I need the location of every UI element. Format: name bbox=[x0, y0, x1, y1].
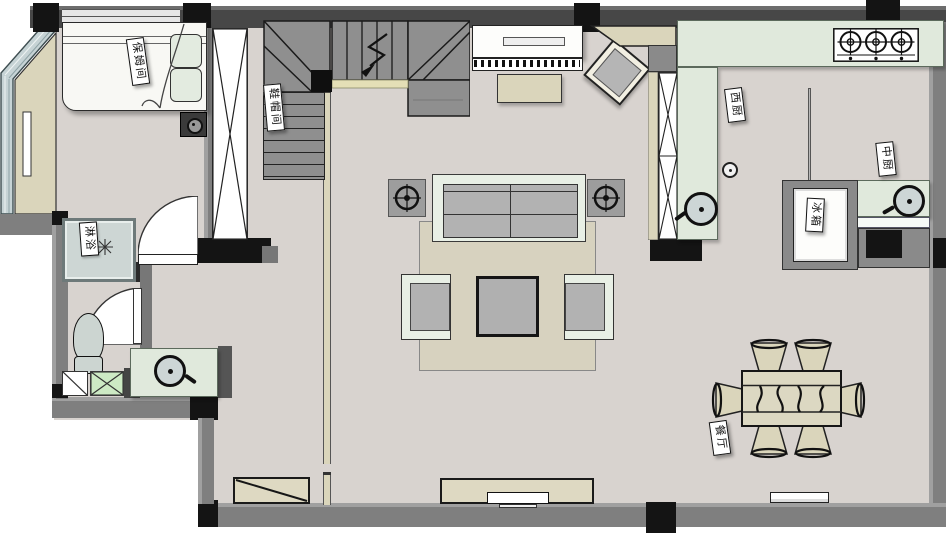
wall-column bbox=[33, 3, 59, 32]
shower-head-icon bbox=[96, 238, 114, 256]
door-leaf bbox=[138, 254, 198, 265]
floor-plan: 保姆间 鞋帽间 淋浴 西厨 中厨 冰箱 餐厅 bbox=[0, 0, 946, 540]
piano-keyboard bbox=[472, 58, 583, 71]
piano-bench bbox=[497, 74, 562, 103]
wall-column bbox=[646, 502, 676, 533]
wall-column bbox=[198, 500, 218, 527]
stair-newel bbox=[311, 70, 332, 92]
tv-base bbox=[499, 504, 537, 508]
door-leaf bbox=[133, 288, 142, 344]
doorway-gap bbox=[322, 464, 332, 472]
dining-set bbox=[710, 338, 867, 460]
door-jamb bbox=[323, 472, 331, 475]
shoe-cabinet-diagonal bbox=[233, 477, 310, 504]
wall-column bbox=[933, 238, 946, 268]
sofa-seam bbox=[510, 184, 511, 238]
door-swing-bedroom bbox=[138, 196, 198, 255]
nightstand-knob bbox=[187, 118, 203, 134]
coffee-table bbox=[476, 276, 539, 337]
wall-step bbox=[262, 246, 278, 263]
toilet bbox=[73, 313, 104, 362]
wall-under-wardrobe bbox=[195, 238, 271, 263]
corner-cabinet-diagonal bbox=[62, 371, 88, 396]
wall-shelf bbox=[770, 492, 829, 503]
dining-table bbox=[742, 371, 841, 426]
armchair bbox=[401, 274, 451, 340]
wall-bottom bbox=[198, 503, 946, 527]
water-point-icon bbox=[722, 162, 738, 178]
west-kitchen-sink-icon bbox=[684, 192, 718, 226]
wardrobe-column bbox=[212, 28, 248, 240]
wall-corner bbox=[190, 397, 218, 420]
wall-vanity-cap bbox=[218, 346, 232, 398]
vanity-sink-icon bbox=[154, 355, 186, 387]
nightstand bbox=[180, 112, 207, 137]
wall-left-lower bbox=[198, 418, 214, 504]
stove bbox=[833, 28, 919, 62]
appliance-label-fridge: 冰箱 bbox=[805, 198, 824, 233]
room-label-chinese-kitchen: 中厨 bbox=[875, 141, 896, 177]
base-cabinet-dark bbox=[866, 230, 902, 258]
storage-cabinet-x bbox=[90, 371, 124, 396]
armchair bbox=[564, 274, 614, 340]
room-label-shower: 淋浴 bbox=[79, 221, 99, 256]
wall-right bbox=[929, 22, 946, 522]
speaker-crosshair-icon bbox=[587, 179, 625, 217]
piano-music-stand bbox=[503, 37, 565, 46]
glass-partition bbox=[808, 88, 811, 182]
chinese-kitchen-sink-icon bbox=[893, 185, 925, 217]
kitchen-divider-cabinet bbox=[648, 72, 678, 240]
wall-pier bbox=[648, 45, 677, 72]
bay-window bbox=[0, 20, 70, 235]
speaker-crosshair-icon bbox=[388, 179, 426, 217]
tv bbox=[487, 492, 549, 504]
wall-bath-bottom bbox=[52, 397, 198, 418]
window-handle bbox=[23, 112, 31, 176]
